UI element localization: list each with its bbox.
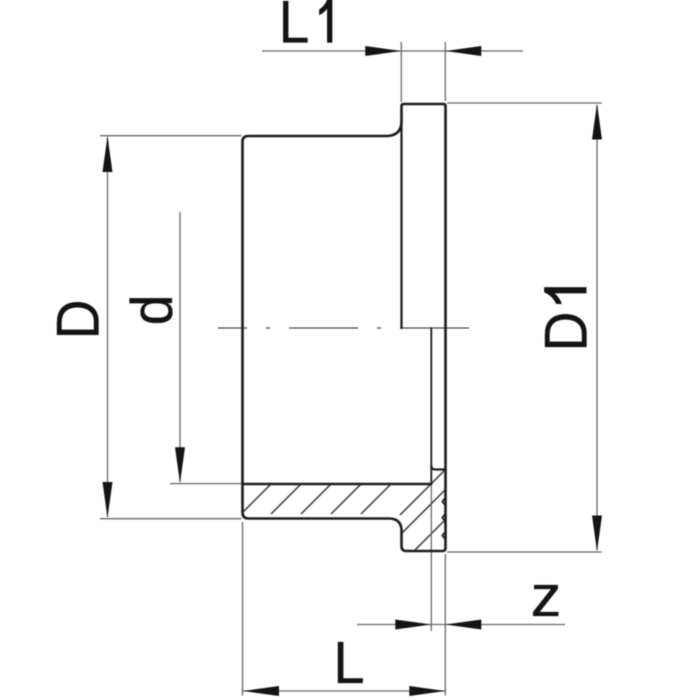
svg-text:D: D bbox=[45, 300, 112, 340]
svg-text:z: z bbox=[531, 564, 562, 629]
svg-text:D: D bbox=[533, 312, 600, 352]
svg-text:d: d bbox=[120, 295, 185, 326]
svg-text:L: L bbox=[279, 0, 310, 56]
svg-text:L: L bbox=[333, 631, 364, 697]
